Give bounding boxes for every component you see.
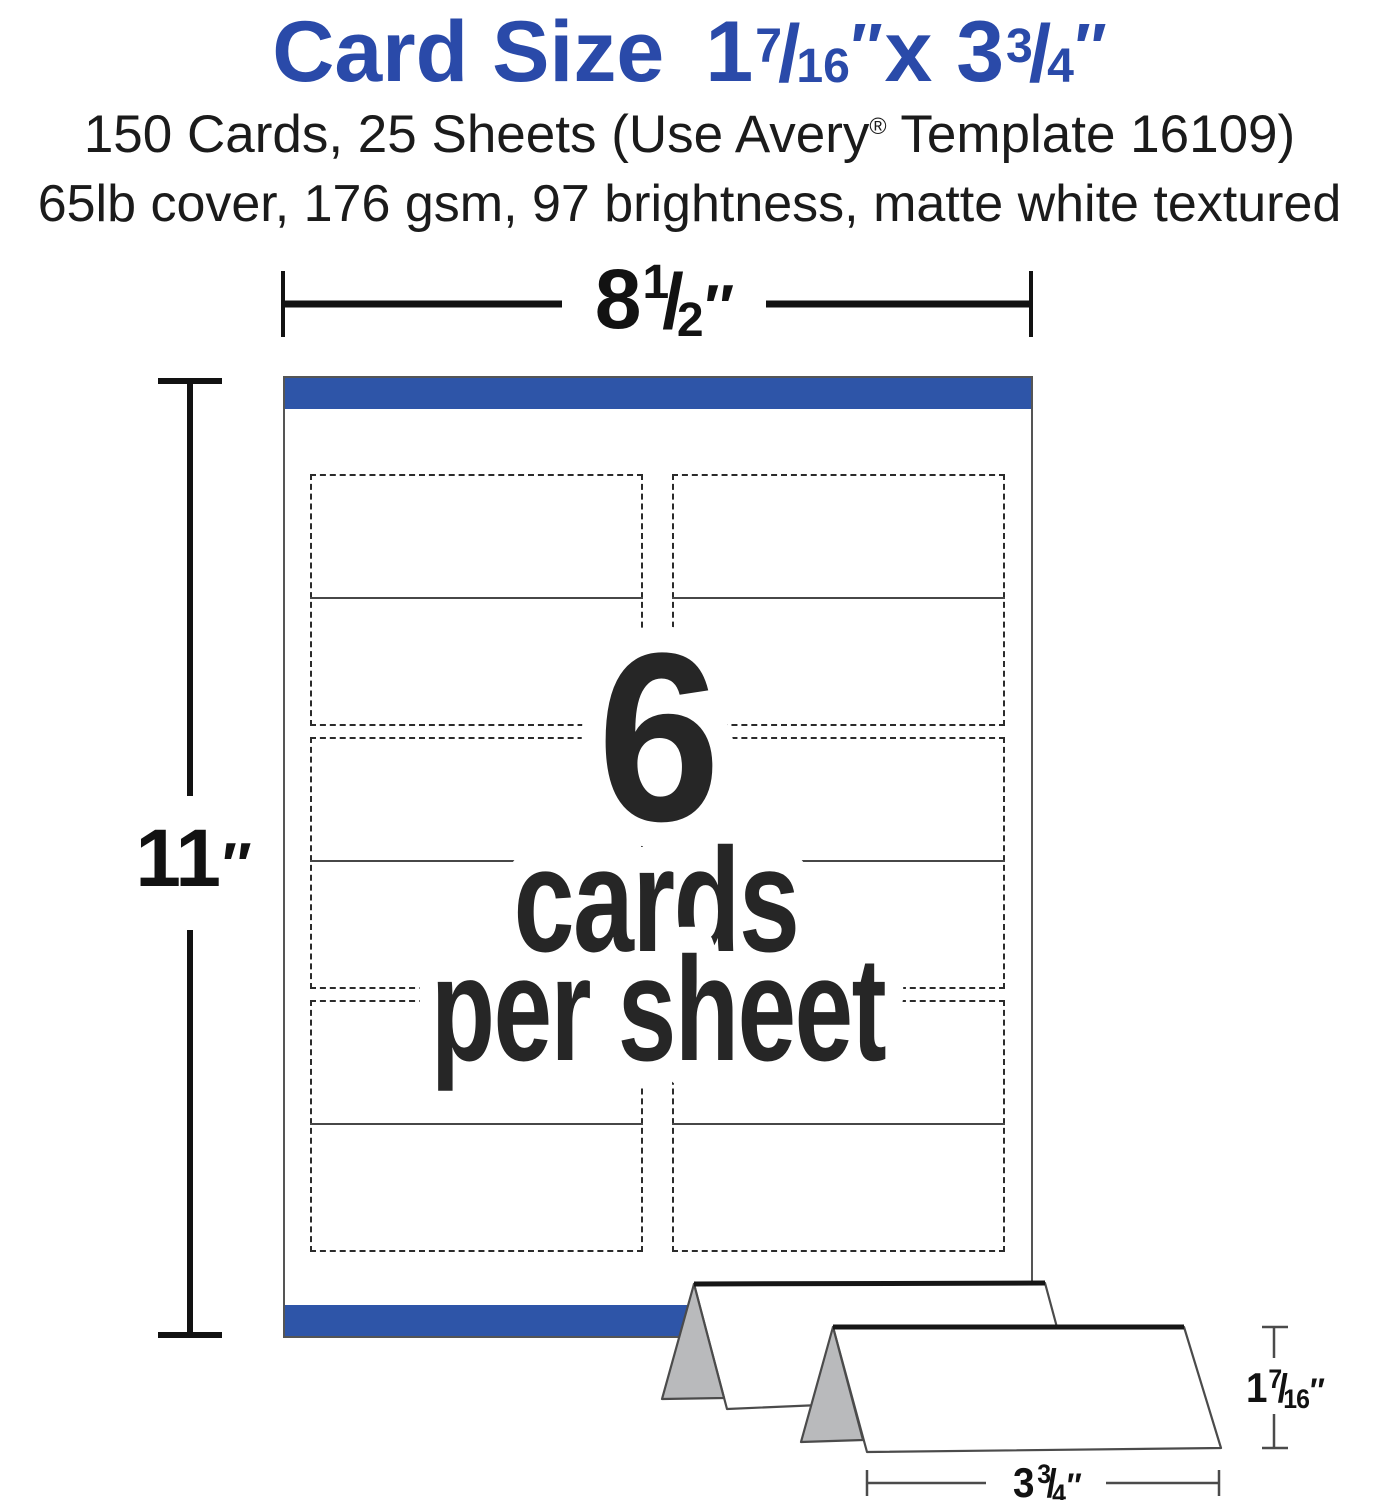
card-size-denominator: 16 — [796, 39, 850, 93]
tent-card-front-panel — [833, 1327, 1221, 1452]
sheet-top-blue-bar — [285, 378, 1031, 409]
title-prefix: Card Size — [272, 4, 664, 100]
inch-mark-2: ″ — [1075, 10, 1107, 85]
tent-card-front — [801, 1327, 1221, 1452]
sheet-diagram — [283, 376, 1033, 1338]
subtitle-counts-text: 150 Cards, 25 Sheets (Use Avery — [84, 105, 870, 164]
card-outline — [310, 474, 643, 726]
card-size-denominator-2: 4 — [1047, 39, 1074, 93]
fold-line — [672, 597, 1005, 599]
sheet-width-label: 81/2″ — [595, 252, 734, 347]
registered-mark: ® — [869, 113, 886, 139]
subtitle-counts: 150 Cards, 25 Sheets (Use Avery® Templat… — [0, 108, 1379, 161]
card-size-whole: 1 — [705, 4, 753, 100]
title-mid: x 3 — [884, 4, 1004, 100]
fold-line — [310, 597, 643, 599]
card-height-label: 17/16″ — [1246, 1363, 1325, 1414]
card-outline — [310, 1000, 643, 1252]
fold-line — [310, 1123, 643, 1125]
card-outline — [672, 737, 1005, 989]
fold-line — [672, 860, 1005, 862]
card-outline — [672, 1000, 1005, 1252]
sheet-height-dimension: 11″ — [135, 381, 251, 1335]
inch-mark: ″ — [851, 10, 883, 85]
sheet-height-label: 11″ — [135, 813, 251, 904]
product-diagram-page: Card Size17/16″x 33/4″ 150 Cards, 25 She… — [0, 0, 1379, 1500]
fold-line — [672, 1123, 1005, 1125]
tent-card-front-side — [801, 1327, 863, 1442]
card-outline — [310, 737, 643, 989]
card-width-label: 33/4″ — [1013, 1458, 1082, 1500]
sheet-bottom-blue-bar — [285, 1305, 1031, 1336]
page-title: Card Size17/16″x 33/4″ — [0, 9, 1379, 95]
subtitle-counts-text-2: Template 16109) — [887, 105, 1296, 164]
sheet-width-dimension: 81/2″ — [283, 252, 1031, 347]
subtitle-paper-specs: 65lb cover, 176 gsm, 97 brightness, matt… — [0, 178, 1379, 230]
fold-line — [310, 860, 643, 862]
card-width-dimension: 33/4″ — [867, 1458, 1219, 1500]
card-height-dimension: 17/16″ — [1246, 1327, 1325, 1448]
card-outline — [672, 474, 1005, 726]
